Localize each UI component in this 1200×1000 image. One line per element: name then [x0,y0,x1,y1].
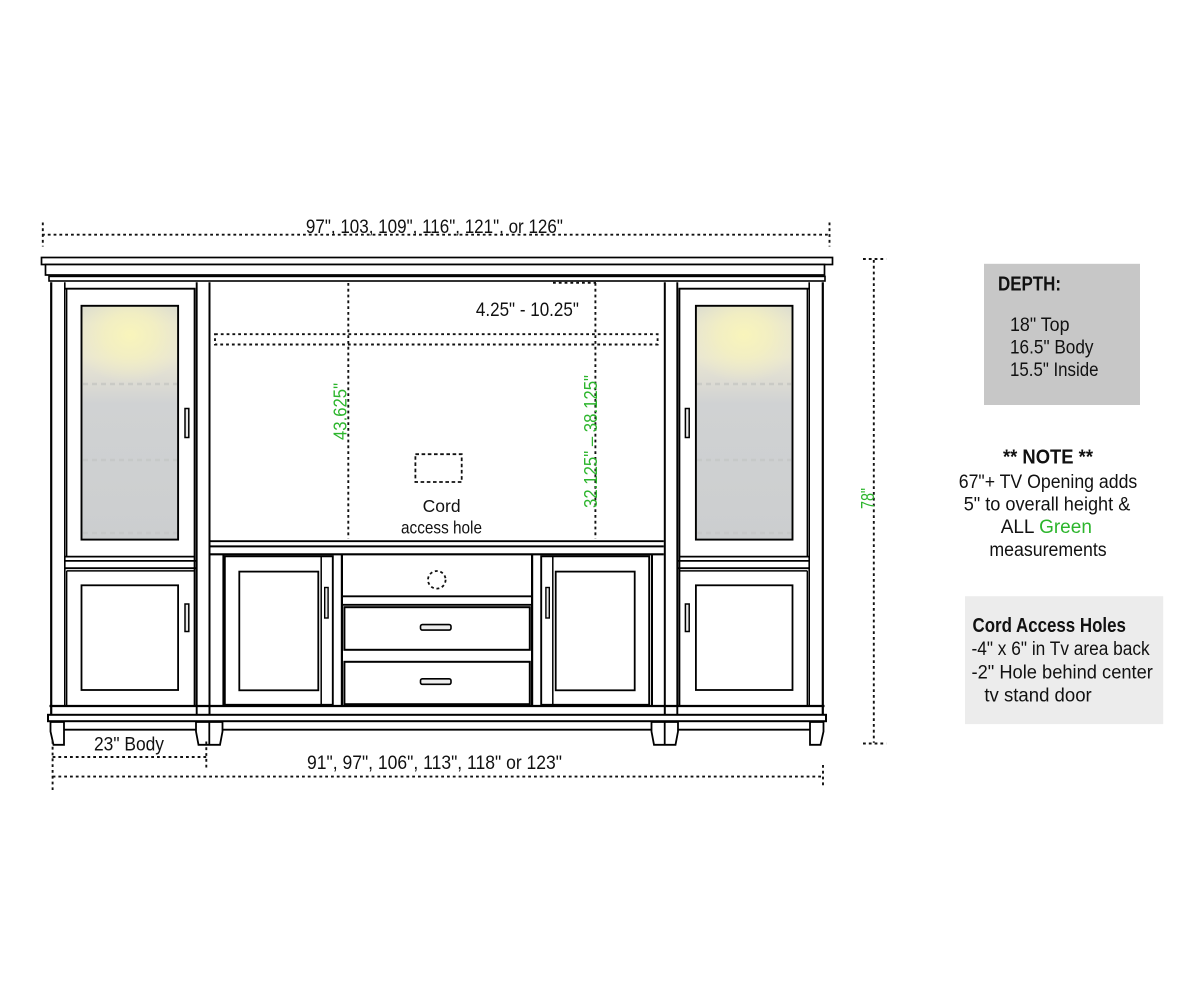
svg-text:78": 78" [858,488,878,509]
svg-text:97", 103, 109", 116", 121", or: 97", 103, 109", 116", 121", or 126" [306,217,563,238]
svg-text:5" to overall height &: 5" to overall height & [964,494,1131,515]
svg-text:43.625": 43.625" [331,383,351,440]
svg-text:4.25" - 10.25": 4.25" - 10.25" [476,300,579,321]
svg-text:15.5" Inside: 15.5" Inside [1010,360,1099,381]
svg-text:tv stand door: tv stand door [984,685,1092,706]
svg-text:-2" Hole behind center: -2" Hole behind center [972,663,1154,684]
svg-text:18" Top: 18" Top [1010,315,1070,336]
svg-text:ALL Green: ALL Green [1001,517,1092,538]
svg-text:Cord Access Holes: Cord Access Holes [973,615,1126,637]
svg-text:measurements: measurements [989,540,1106,561]
svg-text:91", 97", 106", 113", 118" or: 91", 97", 106", 113", 118" or 123" [307,753,562,774]
svg-text:Cord: Cord [423,496,461,516]
svg-text:16.5" Body: 16.5" Body [1010,338,1094,359]
svg-text:** NOTE **: ** NOTE ** [1003,447,1093,469]
svg-text:67"+ TV Opening adds: 67"+ TV Opening adds [959,472,1138,493]
svg-text:32.125" – 38.125": 32.125" – 38.125" [581,375,601,508]
svg-text:access hole: access hole [401,518,482,538]
svg-text:23" Body: 23" Body [94,735,164,756]
svg-text:DEPTH:: DEPTH: [998,273,1061,295]
svg-text:-4" x 6" in Tv area back: -4" x 6" in Tv area back [972,639,1151,660]
